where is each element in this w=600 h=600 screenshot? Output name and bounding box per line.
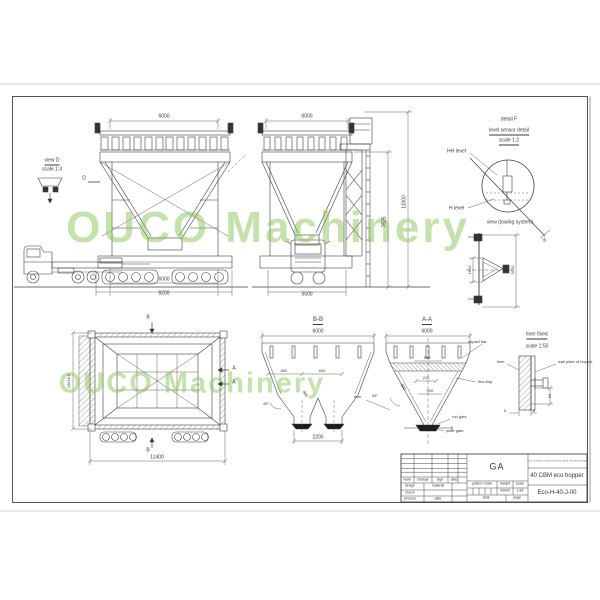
- towing-dim-3500: 3500: [511, 266, 515, 275]
- tb-scale-value: 1:85: [517, 489, 524, 493]
- aa-dim-500: 500: [424, 356, 431, 360]
- aa-dim-212: 212: [423, 376, 430, 380]
- side-dim-bottom: 5500: [301, 293, 312, 298]
- side-dim-7625: 7625: [383, 216, 388, 227]
- detail-f-scale: scale 1:2: [499, 139, 519, 146]
- front-dim-bottom-outer: 8200: [158, 292, 169, 297]
- title-block-company: eco heavy machinery and technology: [527, 460, 587, 463]
- top-view-marker-a2: A: [232, 381, 235, 386]
- tb-row-design: design: [405, 484, 415, 488]
- hh-level-label: HH level: [447, 150, 466, 155]
- bb-dim-600: 600: [319, 369, 326, 373]
- tb-row-material: material: [432, 484, 444, 488]
- watermark-large: OUCO Machinery: [66, 203, 470, 253]
- top-view-dim-width: 11400: [150, 456, 164, 461]
- side-dim-11000: 11000: [403, 195, 408, 209]
- bb-liner-label: liner: [354, 395, 362, 399]
- tb-weight-value: 40000: [500, 489, 510, 493]
- tb-row-process: process: [404, 497, 416, 501]
- tb-col-date: date: [451, 478, 458, 482]
- top-view-dim-height: 10618.5: [67, 374, 71, 388]
- front-dim-bottom-inner: 6000: [158, 278, 169, 283]
- drawing-sheet: OUCO Machinery OUCO Machinery 6000 6000 …: [0, 0, 600, 600]
- frame: [13, 97, 591, 503]
- front-dim-top: 6000: [158, 115, 169, 120]
- aa-impact-bar: impact bar: [468, 340, 487, 344]
- drawing-linework: [0, 0, 600, 600]
- towing-title: view (towing system): [487, 221, 533, 226]
- aa-plate-gate: plate gate: [446, 429, 464, 433]
- section-aa-title: A-A: [422, 317, 432, 325]
- liner-dim-50: 50: [548, 394, 552, 398]
- tb-weight: weight: [500, 482, 510, 486]
- detail-f-title: detail F: [501, 118, 517, 123]
- h-level-label: H level: [449, 207, 464, 212]
- bb-dim-top: 6000: [312, 330, 323, 335]
- liner-detail-scale: scale 1:50: [526, 345, 549, 350]
- top-view-marker-a1: A: [232, 367, 235, 372]
- bb-dim-bottom: 2200: [312, 436, 323, 441]
- section-bb-title: B-B: [313, 317, 323, 325]
- view-d-label: view D: [44, 159, 59, 166]
- wall-plate-label: wall plate of hopper: [558, 360, 593, 364]
- tb-row-check: check: [405, 491, 414, 495]
- liner-detail: [507, 356, 556, 416]
- tb-col-sign: sign: [437, 478, 443, 482]
- bb-angle: 45°: [263, 402, 269, 406]
- tb-page: page: [513, 496, 521, 500]
- side-dim-top: 6000: [301, 115, 312, 120]
- top-view-marker-b-bottom: B: [146, 449, 149, 454]
- aa-flap-label: flex-flap: [478, 380, 492, 384]
- aa-dim-top: 6000: [421, 330, 432, 335]
- aa-rod-gate: rod gate: [452, 415, 467, 419]
- title-block-ga: GA: [489, 463, 504, 472]
- tb-pattern-mark: pattern mark: [472, 482, 492, 486]
- liner-dim-5: 5: [504, 409, 506, 413]
- liner-label: liner: [497, 360, 505, 364]
- aa-dim-900: 900: [427, 389, 434, 393]
- towing-dim-1600: 1600: [468, 266, 472, 275]
- title-block-product: 40 CBM eco hopper: [530, 473, 583, 479]
- liner-detail-title: liner fixed: [526, 333, 547, 340]
- tb-col-mark: mark: [403, 478, 411, 482]
- tb-row-date: date: [435, 497, 442, 501]
- tb-scale: scale: [516, 482, 524, 486]
- front-section-marker-d: D: [82, 177, 86, 182]
- top-view-marker-b-top: B: [146, 316, 149, 321]
- tb-col-change: change: [417, 478, 428, 482]
- title-block-drawing-no: Eco-H-40-J-00: [537, 490, 576, 496]
- detail-f-subtitle: level sensor detail: [489, 129, 529, 136]
- liner-dim-8: 8: [533, 409, 535, 413]
- aa-angle: 55°: [372, 394, 378, 398]
- view-d-scale: scale 1:4: [42, 168, 62, 173]
- tb-total: total: [483, 496, 490, 500]
- bb-dim-800: 800: [281, 369, 288, 373]
